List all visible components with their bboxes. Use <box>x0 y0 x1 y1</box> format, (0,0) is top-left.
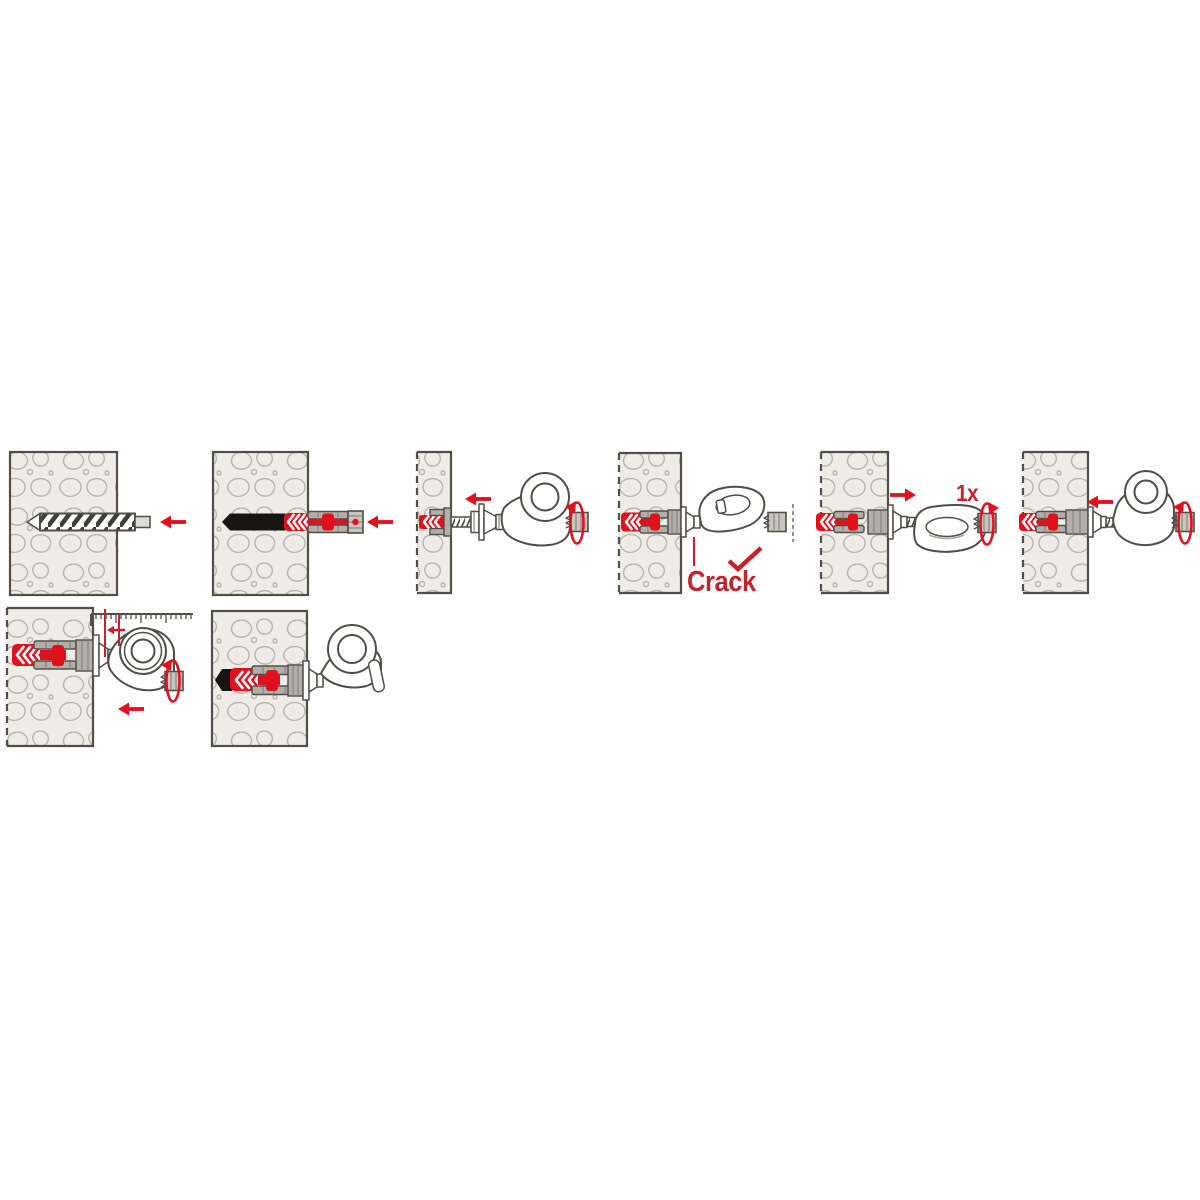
drilled-hole <box>222 514 285 531</box>
wall-cross-section <box>7 608 93 746</box>
step-8-installed <box>212 611 385 746</box>
wall-plug <box>621 510 681 534</box>
eye-hook <box>888 505 986 552</box>
eye-hook <box>1088 471 1174 545</box>
step-3-screw-in-eye-hook <box>417 452 588 593</box>
hook-end-cap <box>368 659 385 693</box>
wall-plug <box>816 510 888 534</box>
arrow-left-icon <box>465 493 491 506</box>
torx-bit-icon <box>764 513 786 532</box>
wall-plug <box>284 511 363 533</box>
eye-hook <box>479 473 570 545</box>
eye-hook <box>681 487 764 537</box>
screw <box>451 512 479 533</box>
eye-hook <box>303 625 385 700</box>
instruction-sheet: Crack <box>0 0 1200 1200</box>
drill-bit <box>27 514 150 531</box>
step-7-adjust-distance <box>7 608 193 746</box>
crack-label: Crack <box>687 564 757 597</box>
turn-count-label: 1x <box>956 480 978 506</box>
step-1-drill-hole <box>10 452 186 595</box>
instruction-diagram: Crack <box>0 0 1200 1200</box>
arrow-right-icon <box>890 489 916 502</box>
step-2-insert-plug <box>213 452 393 595</box>
step-6-screw-in-until-flush <box>1019 452 1194 593</box>
step-5-turn-back-one-turn: 1x <box>816 452 999 593</box>
arrow-left-icon <box>118 703 144 716</box>
step-4-tighten-until-crack: Crack <box>619 453 793 597</box>
ruler <box>91 614 193 626</box>
arrow-left-icon <box>367 516 393 529</box>
arrow-left-icon <box>160 516 186 529</box>
wall-plug <box>1019 510 1088 534</box>
small-arrow-left-icon <box>107 626 125 634</box>
